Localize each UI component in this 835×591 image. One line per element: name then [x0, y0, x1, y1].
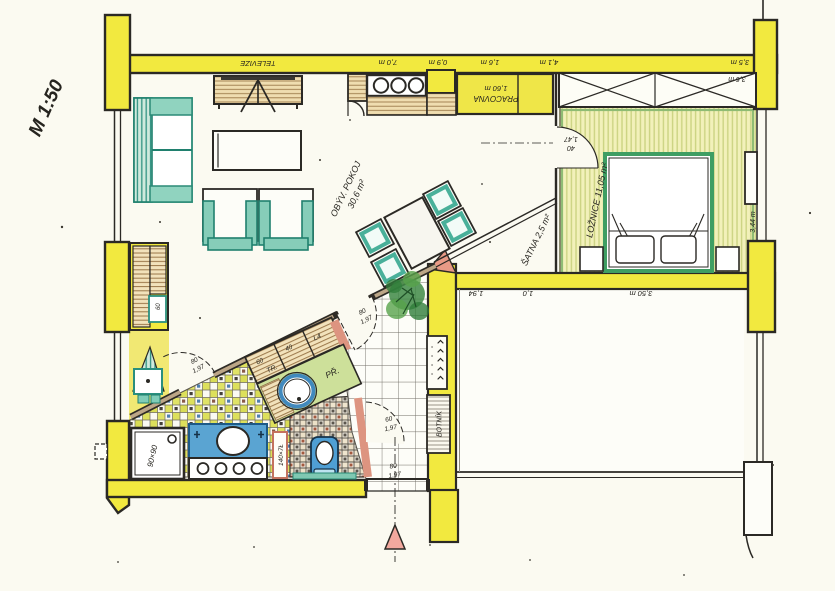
svg-text:4,1 m: 4,1 m [540, 58, 559, 67]
svg-text:1,60 m: 1,60 m [485, 84, 508, 93]
svg-text:3,44 m: 3,44 m [750, 211, 757, 233]
svg-text:40: 40 [567, 144, 575, 151]
svg-text:3,50 m: 3,50 m [630, 289, 653, 298]
svg-text:1,94: 1,94 [469, 289, 484, 298]
svg-text:TELEVIZE: TELEVIZE [239, 59, 275, 68]
svg-text:60: 60 [156, 303, 162, 310]
svg-text:0,9 m: 0,9 m [429, 58, 448, 67]
svg-text:3,6 m: 3,6 m [728, 75, 746, 82]
svg-text:7,0 m: 7,0 m [379, 58, 398, 67]
svg-text:PRACOVNA: PRACOVNA [474, 94, 519, 103]
svg-text:3,5 m: 3,5 m [731, 58, 750, 67]
svg-text:140×7Ł: 140×7Ł [278, 444, 285, 466]
svg-text:1,0: 1,0 [522, 289, 533, 298]
svg-text:1,6 m: 1,6 m [481, 58, 500, 67]
svg-text:BOTNÍK: BOTNÍK [435, 411, 444, 437]
svg-text:1,47: 1,47 [563, 135, 578, 142]
